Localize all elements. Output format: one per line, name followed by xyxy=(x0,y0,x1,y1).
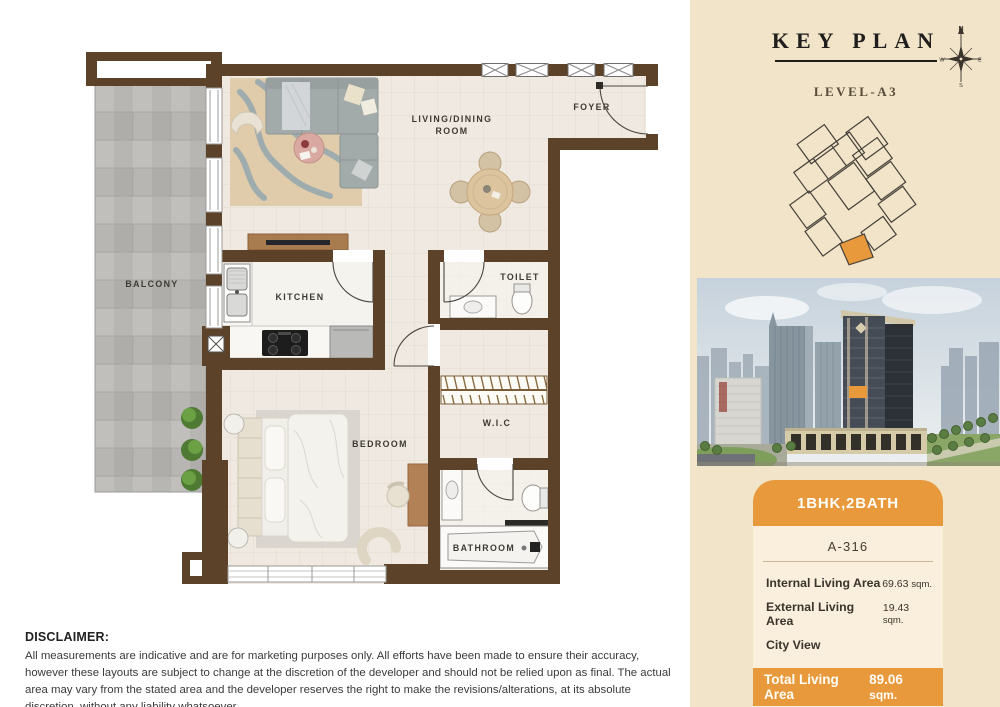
tv-console xyxy=(248,234,348,250)
neighbor-building xyxy=(715,378,761,448)
balcony-plants xyxy=(181,407,203,491)
total-area-value: 89.06 xyxy=(869,672,903,687)
internal-area-value: 69.63 xyxy=(882,578,908,590)
kitchen-label: KITCHEN xyxy=(276,292,325,302)
compass-south: S xyxy=(959,83,963,88)
podium xyxy=(785,428,927,454)
living-dining-label-2: ROOM xyxy=(436,126,469,136)
disclaimer-body: All measurements are indicative and are … xyxy=(25,648,673,707)
kitchen-sink xyxy=(224,264,250,322)
compass-north: N xyxy=(958,26,963,33)
compass-west: W xyxy=(939,58,945,64)
bedroom-label: BEDROOM xyxy=(352,439,408,449)
toilet-label: TOILET xyxy=(500,272,540,282)
floor-plan-svg: BALCONY LIVING/DINING ROOM FOYER KITCHEN… xyxy=(0,0,690,707)
coffee-table xyxy=(294,133,324,163)
living-dining-label: LIVING/DINING xyxy=(412,114,493,124)
external-area-row: External Living Area 19.43 sqm. xyxy=(766,600,932,628)
area-rows: Internal Living Area 69.63 sqm. External… xyxy=(753,562,943,668)
internal-area-label: Internal Living Area xyxy=(766,576,880,590)
side-table xyxy=(228,528,248,548)
external-area-label: External Living Area xyxy=(766,600,883,628)
balcony-label: BALCONY xyxy=(125,279,178,289)
total-area-unit: sqm. xyxy=(869,688,897,702)
total-area-strip: Total Living Area 89.06 sqm. xyxy=(753,668,943,706)
internal-area-row: Internal Living Area 69.63 sqm. xyxy=(766,576,932,590)
compass-icon: N E S W xyxy=(938,22,984,88)
unit-info-card: 1BHK,2BATH A-316 Internal Living Area 69… xyxy=(753,480,943,707)
bathroom-label: BATHROOM xyxy=(453,543,515,553)
wic-label: W.I.C xyxy=(483,418,512,428)
foyer-label: FOYER xyxy=(573,102,610,112)
key-plan-diagram xyxy=(766,104,946,272)
total-area-label: Total Living Area xyxy=(764,672,869,702)
external-area-value: 19.43 xyxy=(883,602,909,614)
view-label: City View xyxy=(766,638,820,652)
wic-wardrobe xyxy=(441,376,547,404)
internal-area-unit: sqm. xyxy=(911,579,932,590)
external-area-unit: sqm. xyxy=(883,615,904,626)
unit-type-label: 1BHK,2BATH xyxy=(797,495,899,512)
unit-number: A-316 xyxy=(753,539,943,554)
balcony xyxy=(86,52,222,492)
key-plan-panel: KEY PLAN LEVEL-A3 N E S W xyxy=(690,0,1000,707)
key-plan-title-underline xyxy=(775,60,937,62)
disclaimer: DISCLAIMER: All measurements are indicat… xyxy=(25,630,673,707)
brochure-page: BALCONY LIVING/DINING ROOM FOYER KITCHEN… xyxy=(0,0,1000,707)
compass-east: E xyxy=(978,58,982,64)
floor-plan-area: BALCONY LIVING/DINING ROOM FOYER KITCHEN… xyxy=(0,0,690,707)
unit-card-body: A-316 Internal Living Area 69.63 sqm. Ex… xyxy=(753,526,943,668)
side-table xyxy=(224,414,244,434)
unit-type-header: 1BHK,2BATH xyxy=(753,480,943,526)
building-photo xyxy=(697,278,1000,466)
bedroom-window xyxy=(228,566,386,582)
highlighted-unit xyxy=(836,229,878,271)
bed xyxy=(238,414,348,542)
stove xyxy=(262,330,308,356)
kitchen-appliance xyxy=(330,326,373,358)
view-row: City View xyxy=(766,638,932,652)
disclaimer-heading: DISCLAIMER: xyxy=(25,630,673,644)
